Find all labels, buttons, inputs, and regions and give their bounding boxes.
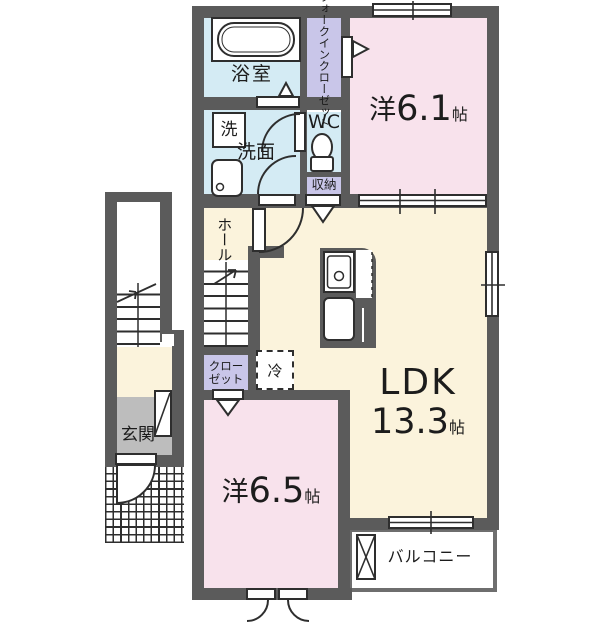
storage-label: 収納 xyxy=(307,176,341,194)
western65-unit: 帖 xyxy=(304,488,320,510)
wing-wall-right-lower xyxy=(172,338,184,467)
closet-label-line2: ゼット xyxy=(209,373,244,386)
wing-wall-notch xyxy=(162,334,174,346)
kitchen-counter xyxy=(320,248,376,348)
hall-label: ホール xyxy=(212,210,236,268)
interior-stairs xyxy=(204,260,248,347)
west65-door-leaf-right xyxy=(278,588,308,600)
ldk-name: LDK xyxy=(379,363,456,403)
western65-label: 洋6.5帖 xyxy=(204,458,338,510)
window-top xyxy=(372,3,452,17)
entry-door-leaf xyxy=(115,453,157,465)
wic-label-line1: ウォークイン xyxy=(318,0,331,60)
hall-door-leaf xyxy=(252,208,266,252)
bath-label: 浴室 xyxy=(222,62,282,86)
floor-plan: 浴室 洗 洗面 WC 収納 ウォークイン クローゼット ホール クロー ゼット … xyxy=(0,0,615,622)
wall-left xyxy=(192,6,204,600)
wc-door-leaf xyxy=(294,112,306,152)
washroom-label: 洗面 xyxy=(226,140,286,164)
balcony-equipment-box xyxy=(356,534,376,580)
window-balcony xyxy=(388,516,474,529)
western61-size: 6.1 xyxy=(396,90,452,129)
door-arc-west65-left xyxy=(247,600,268,621)
door-arc-west65-right xyxy=(288,600,309,621)
exterior-stairs xyxy=(117,283,160,347)
western61-prefix: 洋 xyxy=(369,96,396,128)
western61-label: 洋6.1帖 xyxy=(350,76,487,128)
storage-door-leaf xyxy=(305,194,341,206)
wic-label-line2: クローゼット xyxy=(318,60,331,129)
bath-door-bar xyxy=(256,96,300,108)
ldk-size: 13.3 xyxy=(371,403,449,442)
west65-door-leaf-left xyxy=(246,588,276,600)
closet-label: クロー ゼット xyxy=(204,355,248,390)
sliding-door-west61 xyxy=(358,194,487,207)
wic-label: ウォークイン クローゼット xyxy=(305,18,343,102)
closet-door-leaf xyxy=(212,389,244,400)
window-right xyxy=(485,251,499,317)
balcony-label: バルコニー xyxy=(380,546,480,568)
washroom-door-leaf xyxy=(258,194,296,206)
ldk-label: LDK 13.3帖 xyxy=(348,352,488,452)
entrance-label: 玄関 xyxy=(114,424,162,446)
ldk-unit: 帖 xyxy=(449,419,465,441)
entrance-porch xyxy=(105,467,184,543)
fridge-label: 冷 xyxy=(256,356,294,386)
western65-size: 6.5 xyxy=(249,472,305,511)
wing-wall-right-upper xyxy=(160,192,172,338)
western65-prefix: 洋 xyxy=(222,478,249,510)
western61-unit: 帖 xyxy=(452,106,468,128)
closet-label-line1: クロー xyxy=(209,360,244,373)
wall-top xyxy=(192,6,499,18)
